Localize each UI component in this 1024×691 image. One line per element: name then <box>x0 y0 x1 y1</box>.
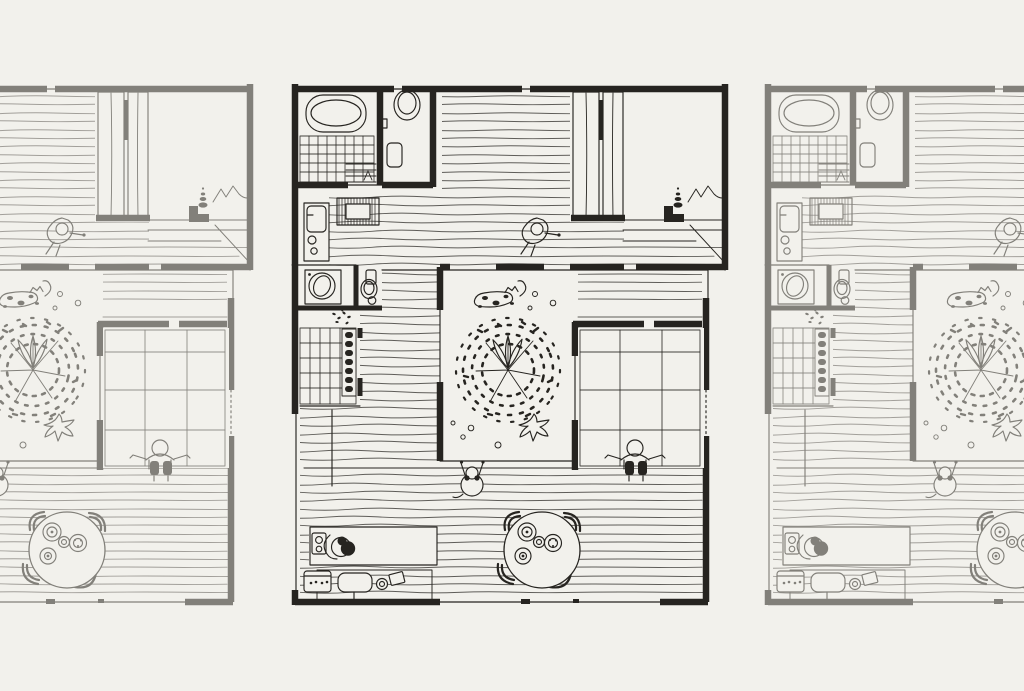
floorplan-artwork <box>0 0 1024 691</box>
floorplan-carousel <box>0 0 1024 691</box>
